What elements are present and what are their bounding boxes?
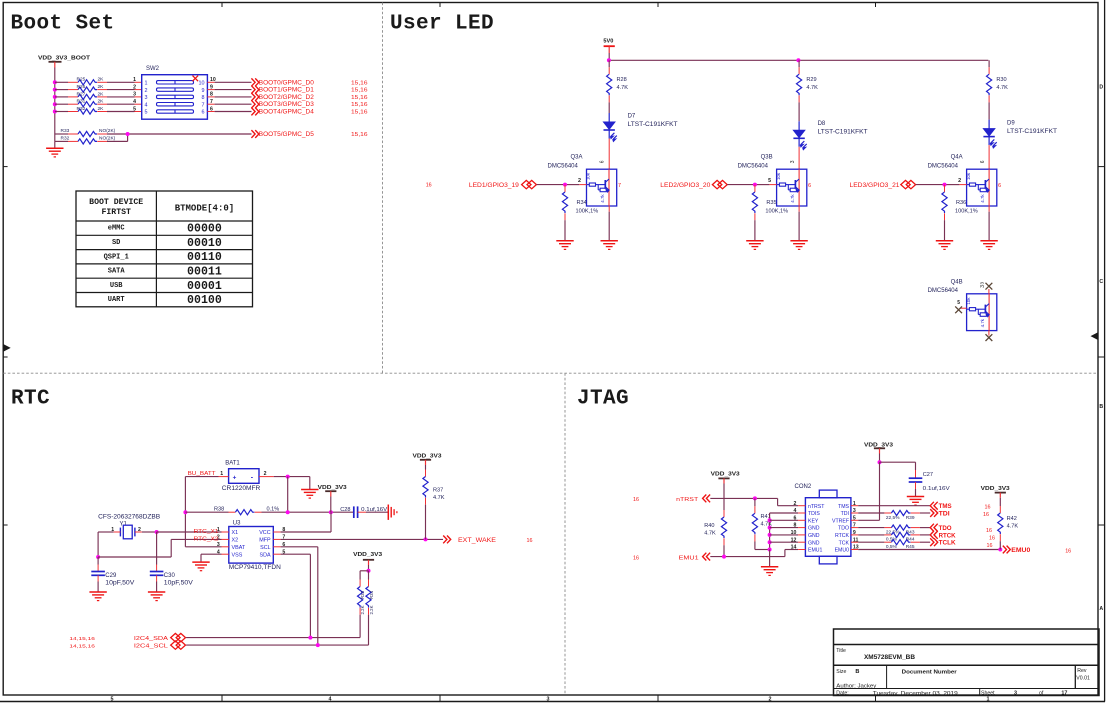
svg-text:VDD_3V3: VDD_3V3 xyxy=(711,472,740,478)
svg-text:Q3A: Q3A xyxy=(571,155,583,161)
svg-text:6: 6 xyxy=(202,110,205,116)
svg-text:BAT1: BAT1 xyxy=(225,460,240,466)
svg-text:7: 7 xyxy=(853,523,856,529)
svg-text:0.1uf,16V: 0.1uf,16V xyxy=(923,486,950,492)
svg-text:4.7k: 4.7k xyxy=(790,194,795,203)
svg-text:4: 4 xyxy=(133,99,136,105)
svg-text:1: 1 xyxy=(133,77,136,83)
svg-text:EMU1: EMU1 xyxy=(679,555,699,561)
svg-text:16: 16 xyxy=(633,555,639,561)
svg-text:U3: U3 xyxy=(233,520,241,526)
svg-text:Date:: Date: xyxy=(836,691,848,697)
svg-text:100K,1%: 100K,1% xyxy=(955,208,978,214)
svg-text:R42: R42 xyxy=(1007,516,1017,522)
svg-text:16: 16 xyxy=(1065,548,1071,554)
svg-text:4.7K: 4.7K xyxy=(617,85,629,91)
svg-text:15,16: 15,16 xyxy=(351,88,368,94)
svg-text:QSPI_1: QSPI_1 xyxy=(104,253,129,261)
svg-text:D9: D9 xyxy=(1007,121,1015,127)
svg-text:14: 14 xyxy=(791,545,797,551)
svg-text:6: 6 xyxy=(210,106,213,112)
svg-text:14,15,16: 14,15,16 xyxy=(69,644,95,650)
svg-text:00110: 00110 xyxy=(187,251,222,264)
svg-text:C30: C30 xyxy=(164,573,176,579)
svg-text:3: 3 xyxy=(980,282,985,285)
svg-text:10pF,50V: 10pF,50V xyxy=(164,581,193,587)
svg-text:2: 2 xyxy=(145,88,148,94)
svg-text:16: 16 xyxy=(983,512,989,518)
svg-text:LED2/GPIO3_20: LED2/GPIO3_20 xyxy=(660,182,711,189)
svg-text:00100: 00100 xyxy=(187,294,222,307)
svg-text:X1: X1 xyxy=(232,530,239,536)
svg-text:UART: UART xyxy=(108,296,125,304)
svg-text:R28: R28 xyxy=(617,77,627,83)
svg-text:10k: 10k xyxy=(586,172,591,180)
svg-text:R34: R34 xyxy=(577,200,587,206)
svg-text:R25: R25 xyxy=(77,77,86,83)
svg-text:R39: R39 xyxy=(906,515,915,521)
svg-text:1: 1 xyxy=(220,471,223,477)
svg-text:EMU0: EMU0 xyxy=(835,548,850,554)
svg-text:10: 10 xyxy=(199,81,205,87)
svg-text:I2C4_SCL: I2C4_SCL xyxy=(134,644,168,650)
svg-text:D7: D7 xyxy=(628,114,636,120)
svg-text:RTC_X1: RTC_X1 xyxy=(194,529,219,535)
svg-text:R30: R30 xyxy=(996,77,1006,83)
svg-text:NO(2K): NO(2K) xyxy=(99,135,116,141)
svg-text:Author: Jackey: Author: Jackey xyxy=(836,684,876,690)
svg-text:BOOT5/GPMC_D5: BOOT5/GPMC_D5 xyxy=(259,131,315,138)
svg-text:C: C xyxy=(1099,279,1103,285)
svg-text:R37: R37 xyxy=(433,488,443,494)
svg-text:BOOT DEVICE: BOOT DEVICE xyxy=(89,198,143,207)
svg-text:5: 5 xyxy=(133,106,136,112)
svg-text:4.7k: 4.7k xyxy=(980,194,985,203)
svg-text:3: 3 xyxy=(547,696,550,702)
svg-text:FIRTST: FIRTST xyxy=(101,208,131,217)
svg-text:1: 1 xyxy=(987,696,990,702)
svg-text:C27: C27 xyxy=(923,472,933,478)
svg-text:4.7K: 4.7K xyxy=(433,495,445,501)
svg-text:Sheet: Sheet xyxy=(981,691,995,697)
svg-text:16: 16 xyxy=(985,505,991,511)
svg-text:USB: USB xyxy=(110,282,123,290)
svg-text:LED3/GPIO3_21: LED3/GPIO3_21 xyxy=(850,182,901,189)
svg-text:Size: Size xyxy=(836,669,846,675)
svg-text:B: B xyxy=(855,669,859,675)
svg-text:TDI: TDI xyxy=(841,511,849,517)
svg-text:Q3B: Q3B xyxy=(761,155,773,161)
svg-text:6: 6 xyxy=(600,160,606,163)
svg-text:RTCK: RTCK xyxy=(835,533,850,539)
svg-text:LTST-C191KFKT: LTST-C191KFKT xyxy=(818,130,868,136)
svg-text:NO(2K): NO(2K) xyxy=(99,128,116,134)
svg-text:CON2: CON2 xyxy=(795,484,812,490)
svg-text:VCC: VCC xyxy=(259,530,270,536)
svg-text:13: 13 xyxy=(853,545,859,551)
svg-text:BOOT2/GPMC_D2: BOOT2/GPMC_D2 xyxy=(259,94,315,101)
svg-text:MFP: MFP xyxy=(259,538,271,544)
svg-text:6: 6 xyxy=(980,160,986,163)
svg-text:11: 11 xyxy=(853,537,859,543)
svg-text:Tuesday, December 03, 2019: Tuesday, December 03, 2019 xyxy=(873,691,958,697)
svg-text:V0.01: V0.01 xyxy=(1076,676,1090,682)
svg-text:3: 3 xyxy=(145,95,148,101)
svg-text:00001: 00001 xyxy=(187,280,222,293)
svg-text:Document Number: Document Number xyxy=(902,670,958,676)
svg-text:SD: SD xyxy=(112,239,120,247)
svg-text:4: 4 xyxy=(794,508,797,514)
svg-text:D8: D8 xyxy=(818,121,826,127)
svg-text:DMC56404: DMC56404 xyxy=(738,163,769,169)
svg-text:5: 5 xyxy=(957,300,960,306)
svg-text:A: A xyxy=(1099,606,1103,612)
svg-text:RTC_X2: RTC_X2 xyxy=(194,537,219,543)
svg-text:VSS: VSS xyxy=(232,552,243,558)
svg-text:XM5728EVM_BB: XM5728EVM_BB xyxy=(864,655,916,661)
svg-text:5: 5 xyxy=(768,178,771,184)
svg-text:nTRST: nTRST xyxy=(676,497,699,503)
svg-text:7: 7 xyxy=(210,99,213,105)
svg-text:R35: R35 xyxy=(766,200,776,206)
svg-text:5: 5 xyxy=(853,515,856,521)
svg-text:6: 6 xyxy=(808,183,811,189)
svg-text:R36: R36 xyxy=(956,200,966,206)
svg-text:1: 1 xyxy=(145,81,148,87)
svg-text:VDD_3V3: VDD_3V3 xyxy=(981,486,1010,492)
svg-text:16: 16 xyxy=(986,528,992,534)
svg-text:7: 7 xyxy=(202,102,205,108)
svg-text:GND: GND xyxy=(808,526,820,532)
svg-text:VTREF: VTREF xyxy=(832,518,849,524)
svg-text:LTST-C191KFKT: LTST-C191KFKT xyxy=(628,122,678,128)
svg-text:22,5%: 22,5% xyxy=(886,515,900,521)
svg-text:10: 10 xyxy=(791,530,797,536)
svg-text:10k: 10k xyxy=(966,297,971,305)
svg-text:TDO: TDO xyxy=(838,526,849,532)
svg-text:16: 16 xyxy=(426,183,432,189)
svg-text:TDIS: TDIS xyxy=(808,511,820,517)
svg-text:15,16: 15,16 xyxy=(351,95,368,101)
svg-text:TCK: TCK xyxy=(839,540,850,546)
svg-text:2: 2 xyxy=(958,178,961,184)
svg-text:SW2: SW2 xyxy=(146,66,160,72)
svg-text:BTMODE[4:0]: BTMODE[4:0] xyxy=(175,204,234,214)
svg-text:2: 2 xyxy=(133,84,136,90)
svg-text:VBAT: VBAT xyxy=(232,545,246,551)
svg-text:Q4B: Q4B xyxy=(951,279,963,285)
svg-text:I2C4_SDA: I2C4_SDA xyxy=(134,636,168,642)
svg-text:Q4A: Q4A xyxy=(951,155,963,161)
svg-text:CR1220MFR: CR1220MFR xyxy=(222,486,261,492)
svg-text:TMS: TMS xyxy=(939,503,952,510)
svg-text:R33: R33 xyxy=(61,128,70,134)
svg-text:4.7K: 4.7K xyxy=(1007,524,1019,530)
svg-text:EMU1: EMU1 xyxy=(808,548,823,554)
svg-text:SATA: SATA xyxy=(108,268,126,276)
svg-text:2: 2 xyxy=(769,696,772,702)
svg-text:15,16: 15,16 xyxy=(351,80,368,86)
svg-text:17: 17 xyxy=(1061,691,1067,697)
svg-text:6: 6 xyxy=(998,183,1001,189)
svg-text:R34: R34 xyxy=(369,590,374,599)
svg-text:eMMC: eMMC xyxy=(108,225,125,233)
svg-text:CFS-20632768DZBB: CFS-20632768DZBB xyxy=(98,515,160,521)
svg-text:LTST-C191KFKT: LTST-C191KFKT xyxy=(1007,129,1057,135)
svg-text:BOOT1/GPMC_D1: BOOT1/GPMC_D1 xyxy=(259,87,315,94)
svg-text:3: 3 xyxy=(1014,691,1017,697)
svg-text:TDI: TDI xyxy=(939,511,950,518)
svg-text:EXT_WAKE: EXT_WAKE xyxy=(458,537,496,544)
svg-text:15,16: 15,16 xyxy=(351,102,368,108)
svg-text:SDA: SDA xyxy=(260,552,271,558)
svg-text:VDD_3V3: VDD_3V3 xyxy=(413,453,442,459)
svg-text:100K,1%: 100K,1% xyxy=(765,208,788,214)
svg-text:4.7K: 4.7K xyxy=(996,85,1008,91)
svg-text:VDD_3V3: VDD_3V3 xyxy=(353,552,382,558)
svg-text:+: + xyxy=(233,475,237,482)
svg-text:16: 16 xyxy=(633,497,639,503)
svg-text:2K: 2K xyxy=(98,99,105,105)
svg-text:SCL: SCL xyxy=(260,545,271,551)
svg-text:16: 16 xyxy=(987,543,993,549)
svg-text:R40: R40 xyxy=(704,523,714,529)
svg-text:Rev: Rev xyxy=(1077,668,1087,674)
svg-text:MCP79410,TFDN: MCP79410,TFDN xyxy=(229,565,281,571)
svg-text:00011: 00011 xyxy=(187,266,222,279)
svg-text:16: 16 xyxy=(527,538,533,544)
svg-text:C28: C28 xyxy=(340,507,350,513)
svg-text:1: 1 xyxy=(853,501,856,507)
svg-text:R38: R38 xyxy=(214,507,224,513)
svg-text:BOOT0/GPMC_D0: BOOT0/GPMC_D0 xyxy=(259,79,315,86)
svg-text:8: 8 xyxy=(202,95,205,101)
svg-text:RTC: RTC xyxy=(11,388,50,411)
svg-text:R31: R31 xyxy=(77,99,86,105)
svg-text:TMS: TMS xyxy=(838,504,849,510)
svg-text:5: 5 xyxy=(111,696,114,702)
svg-text:2.2K: 2.2K xyxy=(360,605,365,614)
svg-text:10pF,50V: 10pF,50V xyxy=(105,581,134,587)
svg-text:B: B xyxy=(1099,404,1103,410)
svg-text:16: 16 xyxy=(989,536,995,542)
svg-text:9: 9 xyxy=(853,530,856,536)
svg-text:of: of xyxy=(1039,691,1044,697)
svg-text:VDD_3V3_BOOT: VDD_3V3_BOOT xyxy=(38,55,91,61)
svg-text:14,15,16: 14,15,16 xyxy=(69,636,95,642)
svg-text:2.2K: 2.2K xyxy=(369,605,374,614)
svg-text:4: 4 xyxy=(329,696,332,702)
svg-text:RTCK: RTCK xyxy=(939,532,957,539)
svg-text:12: 12 xyxy=(791,537,797,543)
svg-text:LED1/GPIO3_19: LED1/GPIO3_19 xyxy=(469,182,520,189)
svg-text:JTAG: JTAG xyxy=(577,388,629,411)
svg-text:8: 8 xyxy=(794,523,797,529)
svg-text:4.7K: 4.7K xyxy=(806,85,818,91)
svg-text:EMU0: EMU0 xyxy=(1011,547,1031,554)
svg-text:15,16: 15,16 xyxy=(351,132,368,138)
svg-text:5V0: 5V0 xyxy=(603,39,613,45)
svg-text:DMC56404: DMC56404 xyxy=(928,163,959,169)
svg-text:00000: 00000 xyxy=(187,223,222,236)
svg-text:X2: X2 xyxy=(232,538,239,544)
svg-text:DMC56404: DMC56404 xyxy=(548,163,579,169)
svg-text:TCLK: TCLK xyxy=(939,540,957,547)
svg-text:BOOT3/GPMC_D3: BOOT3/GPMC_D3 xyxy=(259,101,315,108)
svg-text:15,16: 15,16 xyxy=(351,110,368,116)
svg-text:00010: 00010 xyxy=(187,237,222,250)
svg-text:2: 2 xyxy=(794,501,797,507)
svg-text:10k: 10k xyxy=(966,172,971,180)
svg-text:R33: R33 xyxy=(360,590,365,599)
svg-text:2K: 2K xyxy=(98,84,105,90)
svg-text:DMC56404: DMC56404 xyxy=(928,288,959,294)
svg-text:C29: C29 xyxy=(105,573,117,579)
svg-text:4.7K: 4.7K xyxy=(704,531,716,537)
svg-text:2K: 2K xyxy=(98,91,105,97)
svg-text:3: 3 xyxy=(853,508,856,514)
svg-text:BU_BATT: BU_BATT xyxy=(188,471,217,477)
svg-text:R32: R32 xyxy=(77,106,86,112)
svg-text:4.7k: 4.7k xyxy=(980,318,985,327)
svg-text:7: 7 xyxy=(618,183,621,189)
svg-text:2K: 2K xyxy=(98,77,105,83)
svg-text:3: 3 xyxy=(133,92,136,98)
svg-text:TDO: TDO xyxy=(939,525,952,532)
svg-text:8: 8 xyxy=(210,92,213,98)
svg-text:2: 2 xyxy=(264,471,267,477)
svg-text:4.7k: 4.7k xyxy=(600,194,605,203)
svg-text:5: 5 xyxy=(145,110,148,116)
svg-text:100K,1%: 100K,1% xyxy=(576,208,599,214)
svg-text:GND: GND xyxy=(808,533,820,539)
svg-text:R27: R27 xyxy=(77,91,86,97)
svg-text:2K: 2K xyxy=(98,106,105,112)
svg-text:KEY: KEY xyxy=(808,518,819,524)
svg-text:Boot Set: Boot Set xyxy=(11,13,115,36)
svg-text:9: 9 xyxy=(202,88,205,94)
svg-text:GND: GND xyxy=(808,540,820,546)
svg-text:nTRST: nTRST xyxy=(808,504,825,510)
svg-text:2: 2 xyxy=(138,527,141,533)
svg-text:4: 4 xyxy=(145,102,148,108)
svg-text:R26: R26 xyxy=(77,84,86,90)
svg-text:BOOT4/GPMC_D4: BOOT4/GPMC_D4 xyxy=(259,109,315,116)
svg-text:3: 3 xyxy=(790,160,796,163)
svg-text:10k: 10k xyxy=(776,172,781,180)
svg-text:Title: Title xyxy=(836,648,846,654)
svg-text:User LED: User LED xyxy=(390,13,494,36)
svg-text:9: 9 xyxy=(210,84,213,90)
svg-text:2: 2 xyxy=(578,178,581,184)
svg-text:D: D xyxy=(1099,85,1103,91)
svg-text:6: 6 xyxy=(794,515,797,521)
svg-text:R32: R32 xyxy=(61,135,70,141)
svg-text:R29: R29 xyxy=(806,77,816,83)
